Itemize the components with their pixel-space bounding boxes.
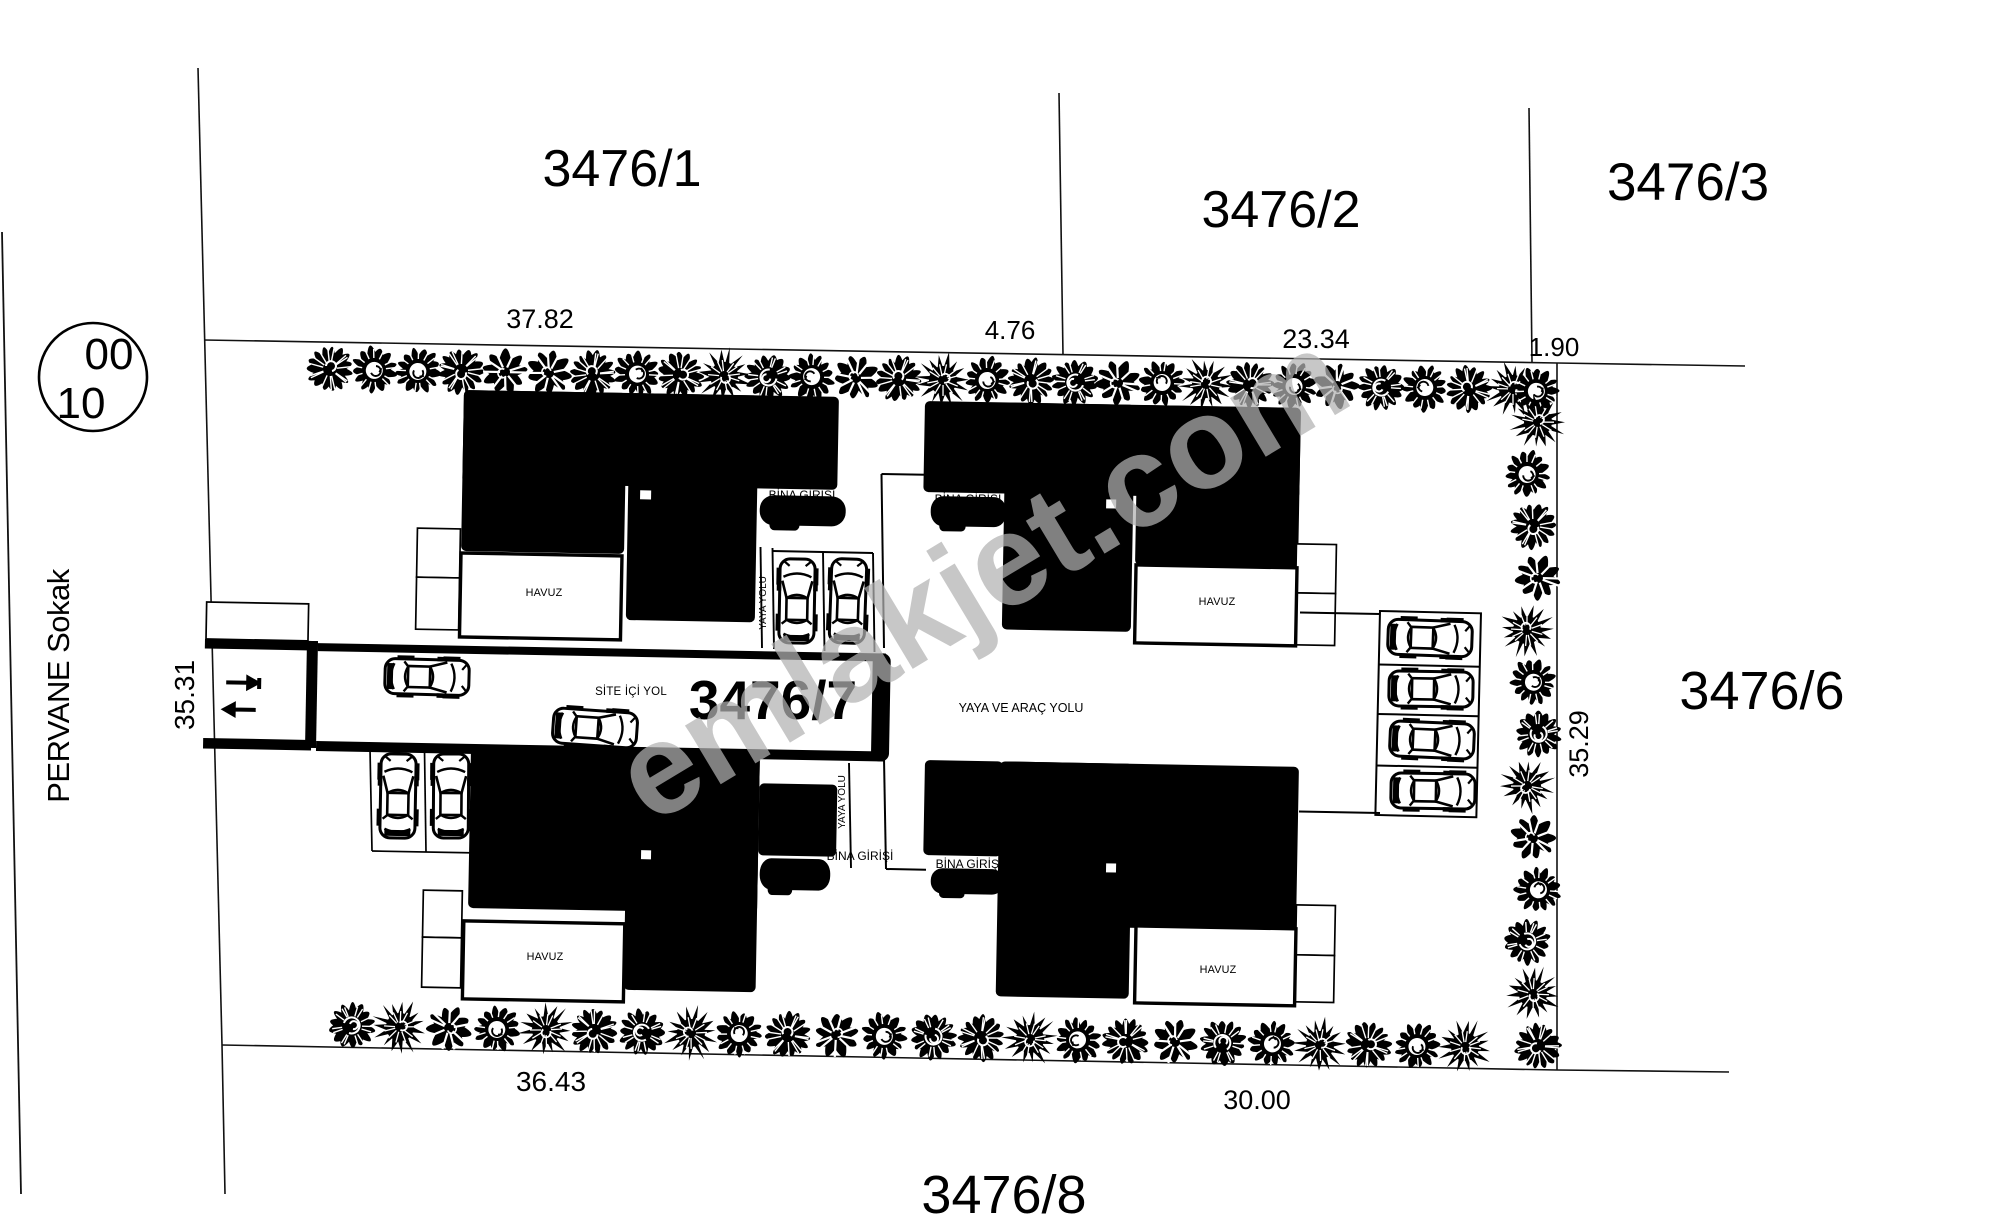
svg-text:00: 00 xyxy=(85,330,134,379)
svg-text:37.82: 37.82 xyxy=(506,304,574,334)
svg-text:YAYA VE ARAÇ YOLU: YAYA VE ARAÇ YOLU xyxy=(959,701,1084,715)
svg-text:35.29: 35.29 xyxy=(1564,710,1594,778)
svg-text:4.76: 4.76 xyxy=(985,315,1036,345)
svg-text:35.31: 35.31 xyxy=(169,660,200,730)
svg-text:36.43: 36.43 xyxy=(516,1066,586,1097)
svg-text:1.90: 1.90 xyxy=(1529,332,1580,362)
svg-text:HAVUZ: HAVUZ xyxy=(527,951,564,963)
svg-text:3476/1: 3476/1 xyxy=(542,140,701,198)
svg-text:HAVUZ: HAVUZ xyxy=(1200,964,1237,976)
svg-text:PERVANE Sokak: PERVANE Sokak xyxy=(41,568,76,803)
svg-text:HAVUZ: HAVUZ xyxy=(1199,596,1236,608)
svg-text:3476/8: 3476/8 xyxy=(921,1165,1086,1225)
svg-text:HAVUZ: HAVUZ xyxy=(526,587,563,599)
svg-text:BİNA GİRİŞİ: BİNA GİRİŞİ xyxy=(827,849,894,863)
svg-text:30.00: 30.00 xyxy=(1223,1085,1291,1115)
svg-text:10: 10 xyxy=(57,379,106,428)
svg-text:3476/2: 3476/2 xyxy=(1201,181,1360,239)
svg-text:YAYA YOLU: YAYA YOLU xyxy=(837,775,848,829)
svg-text:3476/6: 3476/6 xyxy=(1679,661,1844,721)
svg-text:3476/3: 3476/3 xyxy=(1607,153,1769,212)
